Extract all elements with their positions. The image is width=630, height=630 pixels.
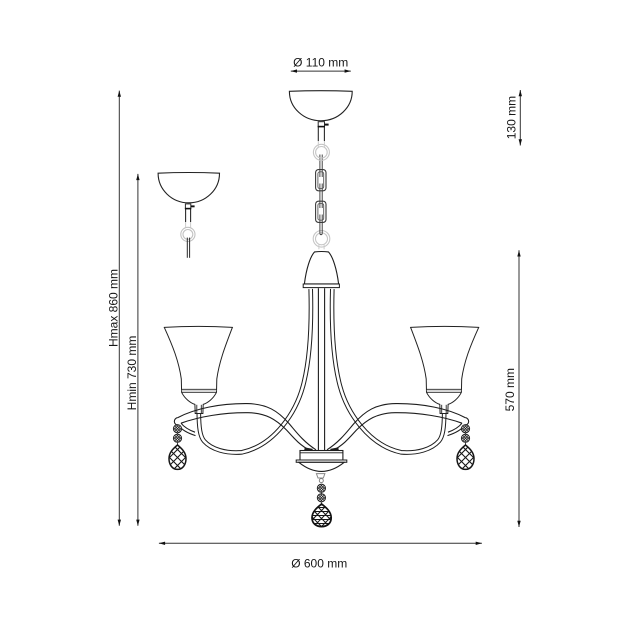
svg-text:Ø 600 mm: Ø 600 mm xyxy=(291,557,347,571)
svg-text:570 mm: 570 mm xyxy=(503,368,517,411)
svg-text:130 mm: 130 mm xyxy=(505,96,519,139)
svg-text:Hmax 860 mm: Hmax 860 mm xyxy=(106,269,120,347)
svg-text:Ø 110 mm: Ø 110 mm xyxy=(293,56,348,70)
svg-text:Hmin 730 mm: Hmin 730 mm xyxy=(125,336,139,411)
